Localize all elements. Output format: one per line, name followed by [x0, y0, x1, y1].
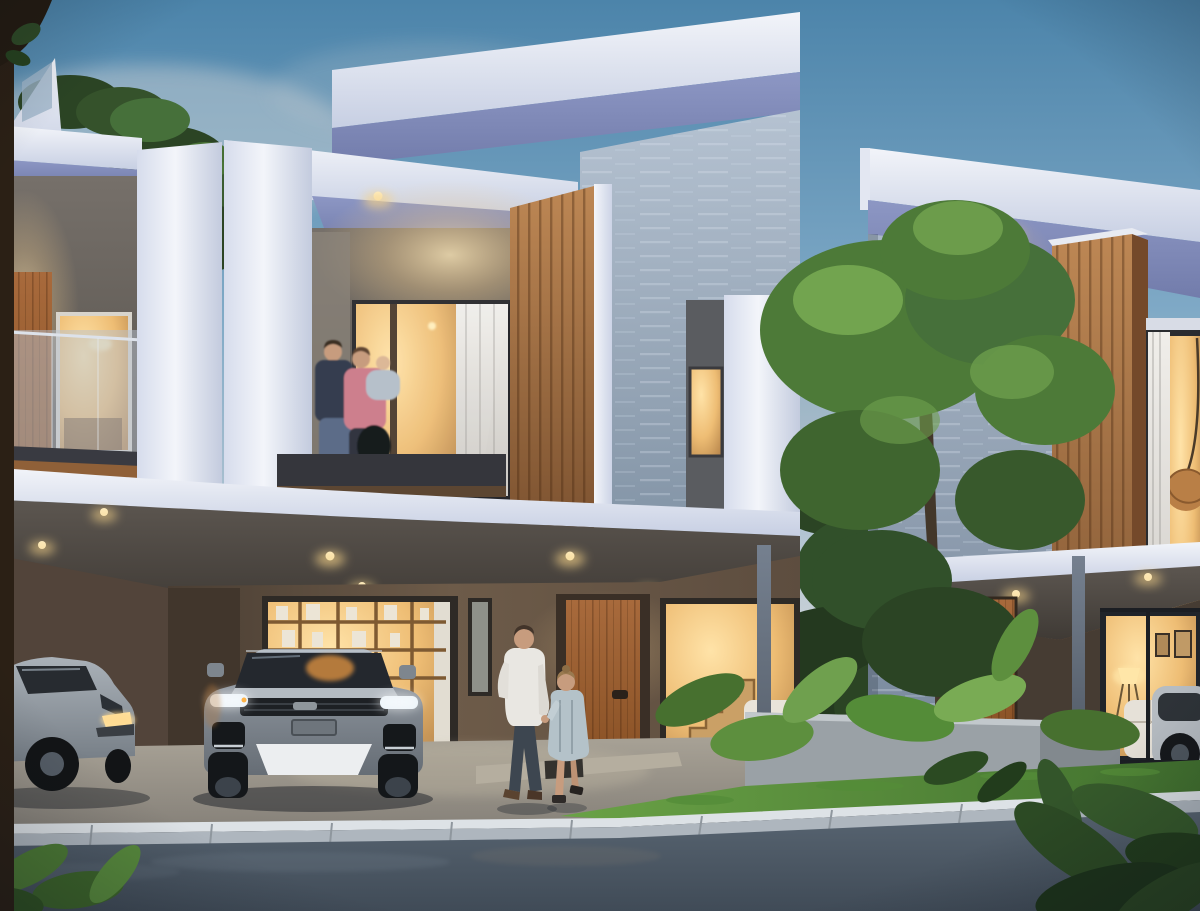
vignette: [0, 0, 1200, 911]
architectural-rendering: [0, 0, 1200, 911]
dusk-townhouse-scene: [0, 0, 1200, 911]
